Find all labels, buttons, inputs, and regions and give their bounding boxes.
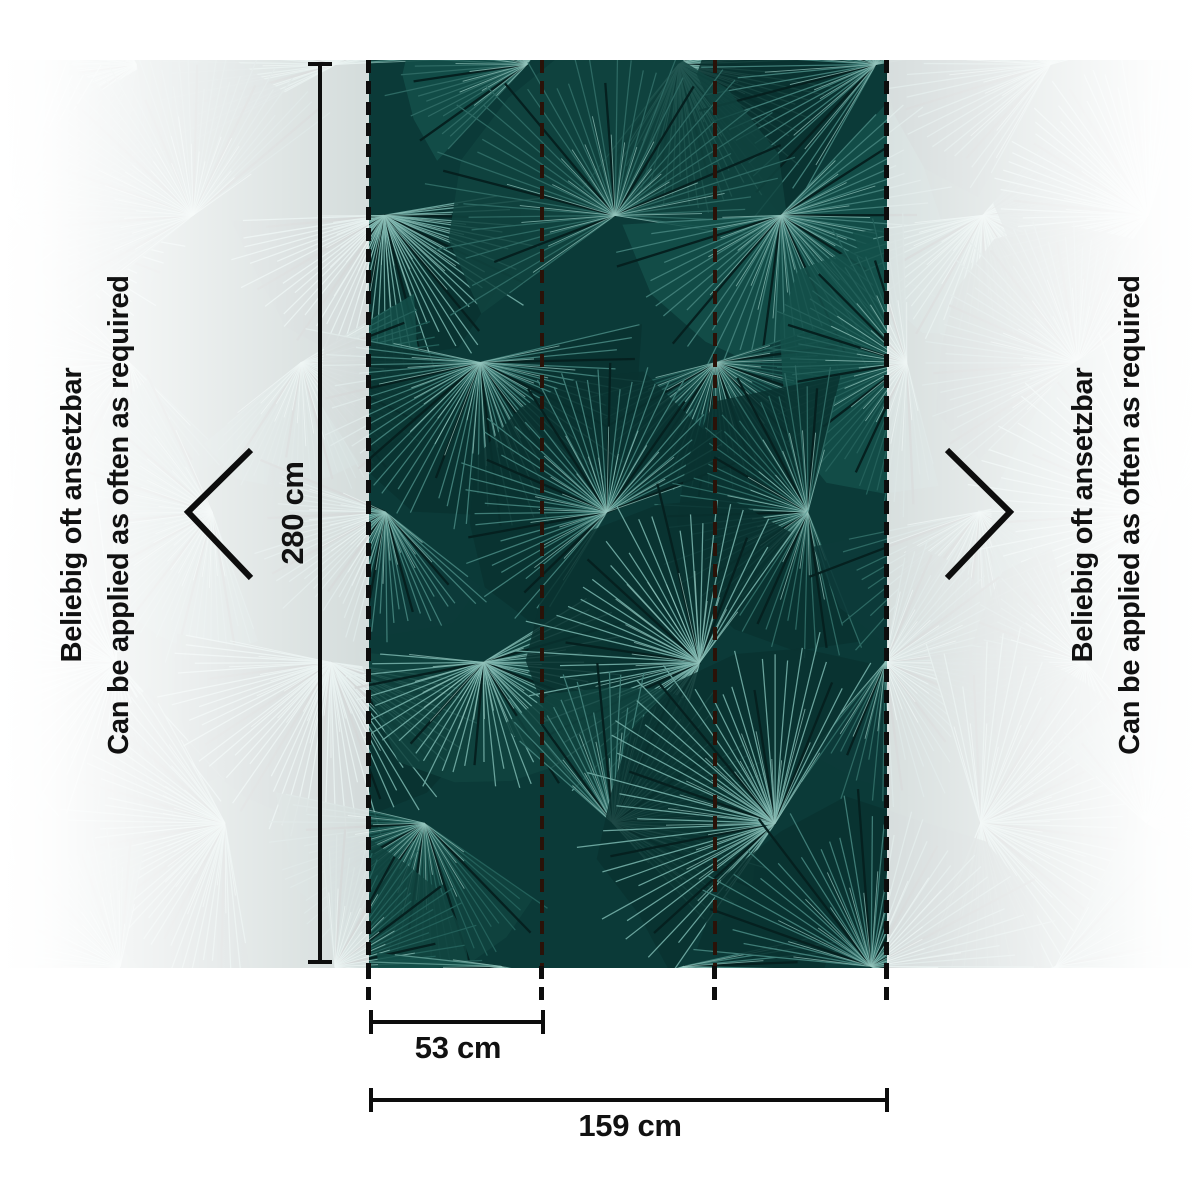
chevron-right-icon (940, 446, 1018, 582)
right-repeat-note-de: Beliebig oft ansetzbar (1060, 65, 1107, 965)
panel-edge-dash-right (884, 60, 889, 968)
panel-edge-dash-left (366, 60, 371, 968)
height-dimension-cap-bottom (308, 960, 332, 964)
extension-line-2 (539, 966, 544, 1008)
chevron-left-icon (180, 446, 258, 582)
extension-line-3 (712, 966, 717, 1008)
total-width-dimension-line (371, 1098, 887, 1102)
height-dimension-line (318, 62, 322, 964)
total-width-label: 159 cm (578, 1108, 681, 1144)
palm-leaf-pattern (369, 60, 887, 968)
left-repeat-note: Beliebig oft ansetzbar Can be applied as… (49, 65, 143, 965)
strip-seam-line-2 (713, 60, 717, 968)
strip-width-dimension-line (371, 1020, 543, 1024)
wallpaper-measurement-diagram: 280 cm 53 cm 159 cm Beliebig oft ansetzb… (0, 0, 1200, 1200)
extension-line-1 (366, 966, 371, 1008)
left-repeat-note-de: Beliebig oft ansetzbar (49, 65, 96, 965)
strip-width-cap-left (369, 1010, 373, 1034)
height-dimension-cap-top (308, 62, 332, 66)
strip-width-cap-right (541, 1010, 545, 1034)
height-label: 280 cm (275, 461, 311, 564)
extension-line-4 (884, 966, 889, 1008)
wallpaper-panel (369, 60, 887, 968)
total-width-cap-right (885, 1088, 889, 1112)
total-width-cap-left (369, 1088, 373, 1112)
right-repeat-note-en: Can be applied as often as required (1107, 65, 1154, 965)
strip-seam-line-1 (540, 60, 544, 968)
left-repeat-note-en: Can be applied as often as required (96, 65, 143, 965)
strip-width-label: 53 cm (415, 1030, 501, 1066)
right-repeat-note: Beliebig oft ansetzbar Can be applied as… (1060, 65, 1154, 965)
